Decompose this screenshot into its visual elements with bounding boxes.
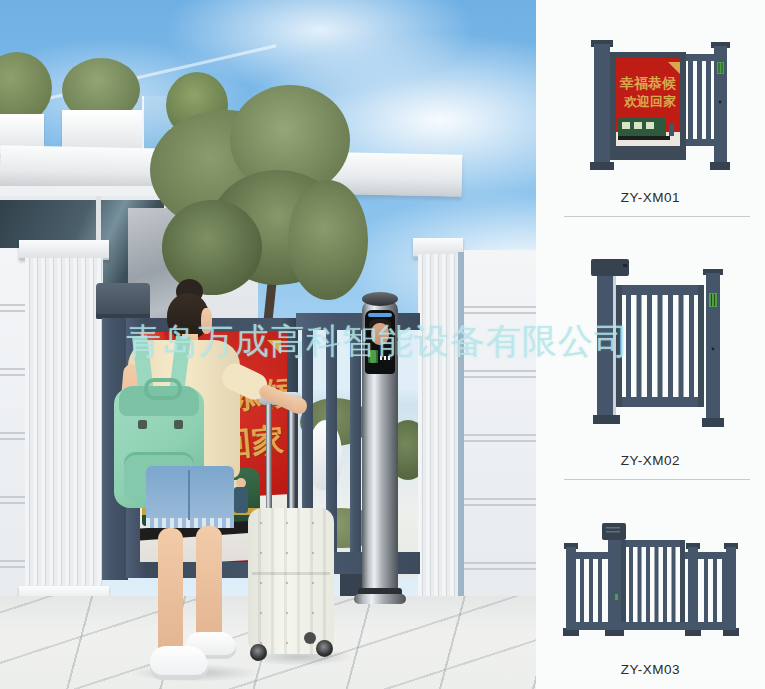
gate-bar	[689, 295, 694, 397]
right-pillar	[418, 254, 458, 602]
gate-bar	[647, 295, 652, 397]
motor-vent	[606, 531, 620, 533]
fence-top-rail	[576, 552, 612, 559]
luggage-handle-tube	[266, 404, 272, 514]
keypad	[717, 62, 724, 74]
shorts-seam	[188, 470, 190, 520]
train-window	[634, 122, 642, 129]
gate-bar	[626, 295, 631, 397]
tree-foliage	[162, 200, 262, 295]
gate-top-rail	[296, 313, 420, 330]
screen-face	[371, 323, 389, 345]
train-window	[646, 122, 654, 129]
left-pillar-cap	[19, 240, 109, 260]
gate-stile	[680, 540, 685, 630]
gate-bar	[672, 547, 676, 624]
fence-post	[726, 547, 736, 630]
product-label-zy-xm03: ZY-XM03	[536, 662, 765, 677]
left-wall	[0, 248, 26, 626]
woman-hand	[292, 398, 307, 414]
face-recognition-screen	[365, 310, 395, 374]
gate-bar	[637, 295, 642, 397]
tree-foliage	[288, 180, 368, 300]
woman-sneaker	[150, 646, 208, 680]
gate-bar	[663, 547, 667, 624]
screen-status-bar	[368, 313, 392, 317]
pedestal-led-row	[380, 356, 392, 360]
product-image-zy-xm01: 幸福恭候 欢迎回家	[580, 36, 730, 182]
suitcase-wheel	[250, 644, 267, 661]
gate-motor-box	[96, 283, 150, 319]
lock-dot	[712, 348, 715, 351]
left-pillar	[25, 258, 103, 588]
shorts-frayed-hem	[146, 518, 234, 528]
gate-top-rail	[616, 285, 704, 295]
product-image-zy-xm02	[585, 255, 725, 437]
motor-vent	[623, 264, 627, 267]
gate-top-rail	[686, 54, 714, 61]
fence-post	[566, 547, 576, 630]
gate-bar	[350, 330, 361, 554]
product-label-zy-xm02: ZY-XM02	[536, 453, 765, 468]
gate-bottom-rail	[686, 139, 714, 146]
poster-calligraphy-line1: 幸福恭候	[619, 75, 677, 91]
gate-bar	[658, 295, 663, 397]
backpack-buckle	[174, 420, 183, 429]
backpack-buckle	[138, 420, 147, 429]
product-label-zy-xm01: ZY-XM01	[536, 190, 765, 205]
luggage-handle-tube	[289, 404, 295, 514]
suitcase-wheel	[316, 640, 333, 657]
woman-face-profile	[201, 308, 212, 334]
gate-drive-post	[608, 540, 621, 630]
keypad	[709, 293, 717, 307]
gate-bar	[679, 295, 684, 397]
page: 幸福恭候 欢迎回家	[0, 0, 765, 689]
gate-bar	[629, 547, 633, 624]
woman-shorts	[146, 466, 234, 524]
gate-post-foot	[590, 162, 614, 170]
gate-post-foot	[593, 415, 620, 424]
gate-stile	[616, 285, 622, 407]
gate-stile	[621, 540, 626, 630]
fence-bottom-rail	[566, 622, 736, 630]
divider	[564, 479, 750, 480]
woman-leg	[196, 526, 222, 648]
poster-ribbon	[267, 340, 281, 354]
gate-bottom-rail	[616, 397, 704, 407]
woman-leg	[158, 528, 183, 658]
gate-motor-box	[591, 259, 629, 276]
product-card-zy-xm03[interactable]	[558, 518, 744, 654]
gate-post-foot	[710, 162, 730, 170]
gate-top-rail	[621, 540, 685, 547]
suitcase-wheel	[304, 632, 316, 644]
poster-calligraphy-line2: 欢迎回家	[623, 94, 677, 109]
suitcase-seam	[252, 572, 330, 575]
pedestal-base-disc	[354, 594, 406, 604]
motor-vent	[606, 527, 620, 529]
hinge-slot	[613, 276, 616, 422]
product-card-zy-xm02[interactable]	[585, 255, 725, 437]
fence-bar	[722, 559, 726, 624]
product-image-zy-xm03	[558, 518, 744, 654]
fence-bar	[704, 559, 708, 624]
right-wall	[464, 250, 538, 606]
product-card-zy-xm01[interactable]: 幸福恭候 欢迎回家	[580, 36, 730, 182]
suitcase	[248, 508, 334, 654]
poster-person	[669, 124, 674, 136]
gate-bar	[638, 547, 642, 624]
hero-photo: 幸福恭候 欢迎回家	[0, 0, 538, 689]
poster-track	[618, 136, 670, 140]
gate-bar	[688, 61, 693, 141]
lock-dot	[719, 101, 722, 104]
fence-bar	[589, 559, 593, 624]
fence-post	[688, 547, 698, 630]
product-catalog: 幸福恭候 欢迎回家	[536, 0, 765, 689]
gate-bar	[646, 547, 650, 624]
fence-bar	[580, 559, 584, 624]
backpack-handle	[144, 378, 182, 400]
gate-bar	[655, 547, 659, 624]
gate-bar	[706, 61, 711, 141]
gate-indicator	[615, 594, 618, 600]
gate-stile	[698, 285, 704, 407]
poster-person-body	[234, 487, 248, 513]
gate-post	[594, 44, 610, 166]
gate-post-foot	[702, 418, 724, 427]
pedestal-cap	[362, 292, 398, 306]
fence-bar	[713, 559, 717, 624]
gate-bar	[668, 295, 673, 397]
gate-bar	[697, 61, 702, 141]
train-window	[622, 122, 630, 129]
divider	[564, 216, 750, 217]
fence-bar	[598, 559, 602, 624]
pedestal-keypad	[368, 350, 378, 363]
